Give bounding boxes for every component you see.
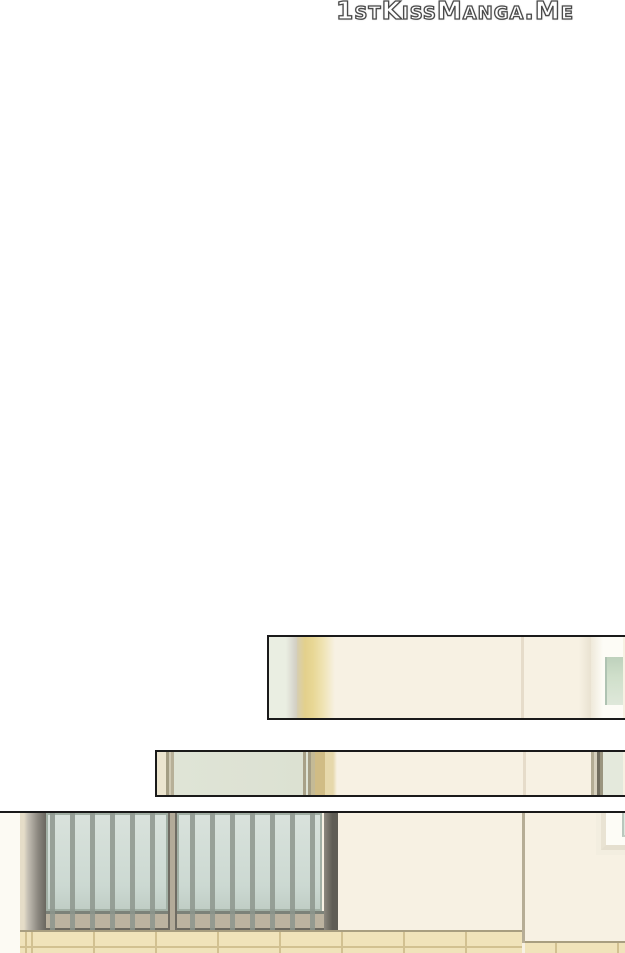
- balcony-post-right: [324, 813, 338, 932]
- panel1-pillar-stripe: [297, 637, 335, 718]
- manga-page: { "page": { "watermark": "1stKissManga.M…: [0, 0, 625, 953]
- panel1-wall-seam: [521, 637, 524, 718]
- panel2-pillar-stripe: [303, 752, 337, 795]
- panel1-window-pane: [605, 657, 623, 705]
- panel1-glass-band: [269, 637, 297, 718]
- panel2-door-frame-left: [157, 752, 177, 795]
- manga-panel-top: [267, 635, 625, 720]
- balcony-post-left: [20, 813, 46, 932]
- panel2-glass-pane: [177, 752, 303, 795]
- tiled-ledge-left: [20, 930, 522, 953]
- panel1-window: [603, 637, 623, 718]
- railing-vertical-bars: [46, 813, 324, 930]
- balcony-railing: [46, 813, 338, 932]
- manga-panel-bottom: [0, 811, 625, 953]
- panel1-window-frame: [591, 637, 603, 718]
- manga-panel-middle: [155, 750, 625, 797]
- railing-center-divider: [168, 813, 177, 930]
- panel3-window-frame: [601, 813, 625, 850]
- panel3-window-corner: [596, 813, 625, 855]
- panel3-wall-seam: [522, 813, 525, 943]
- tiled-ledge-right: [525, 941, 625, 953]
- panel2-wall-seam: [523, 752, 526, 795]
- panel3-outer-wall: [0, 813, 20, 953]
- site-watermark-text: 1stKissManga.Me: [336, 0, 622, 25]
- panel2-window-edge: [589, 752, 623, 795]
- panel1-window-shadow: [579, 637, 591, 718]
